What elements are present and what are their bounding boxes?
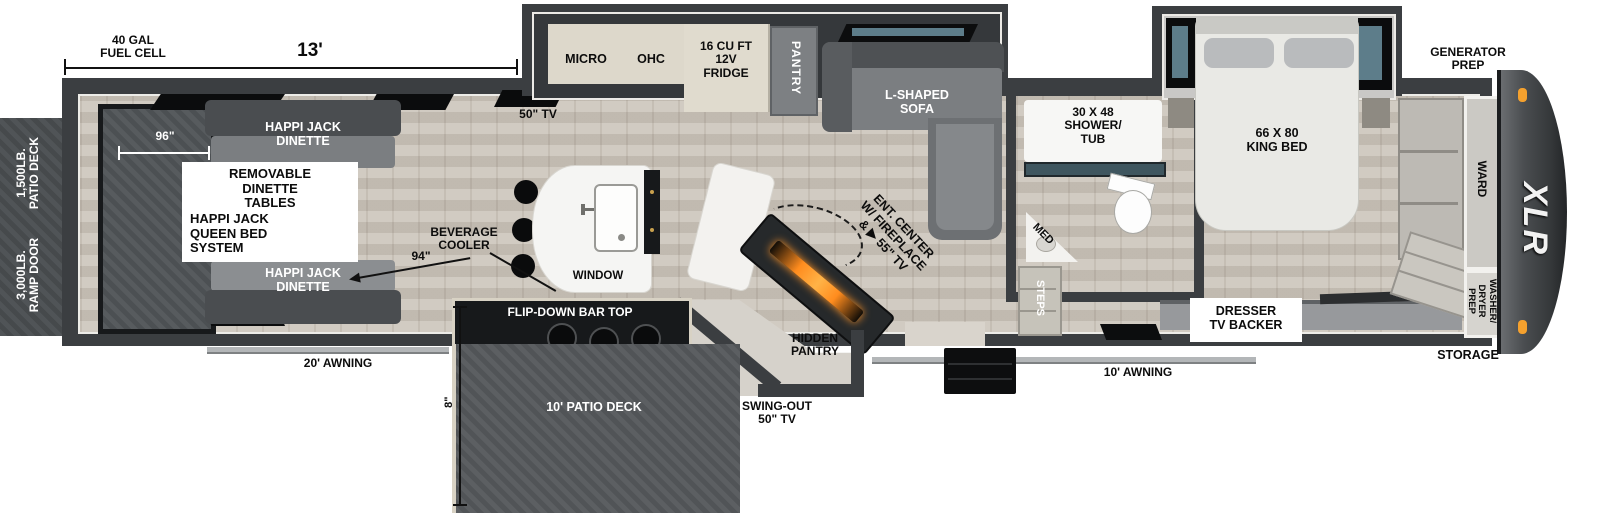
garage-width-label: 96" [130, 130, 200, 143]
generator-prep-label: GENERATOR PREP [1416, 46, 1520, 73]
patio-deck-label: 10' PATIO DECK [520, 400, 668, 414]
dim-tick [453, 306, 467, 308]
awning-left-bar [207, 347, 449, 354]
bed-pillow [1204, 38, 1274, 68]
step-line [948, 378, 1012, 380]
nightstand [1362, 98, 1390, 128]
swing-tv-label: SWING-OUT 50" TV [726, 400, 828, 427]
bar-stool [514, 180, 538, 204]
deck-height-dim-line [459, 306, 461, 506]
brand-logo: XLR [1512, 174, 1554, 264]
island-range [644, 170, 660, 254]
marker-light [1518, 320, 1527, 334]
step-line [948, 363, 1012, 365]
dim-tick [208, 146, 210, 160]
garage-span-label: 94" [396, 250, 446, 263]
dinette-bottom-label: HAPPI JACK DINETTE [215, 266, 391, 294]
steps-label: STEPS [1030, 256, 1046, 340]
toilet-bowl [1114, 190, 1152, 234]
window-glass-pane [1356, 26, 1382, 80]
ward-label: WARD [1472, 137, 1488, 221]
king-bed-label: 66 X 80 KING BED [1212, 126, 1342, 154]
awning-right-bar [872, 357, 1256, 364]
entry-steps [944, 348, 1016, 394]
deck-height-label: 8" [443, 389, 455, 415]
awning-left-label: 20' AWNING [286, 357, 390, 370]
hidden-pantry-wall [758, 384, 864, 397]
sofa-chaise-cushion [936, 124, 994, 230]
garage-tv-label: 50" TV [500, 108, 576, 121]
sink-faucet-base [581, 204, 585, 215]
shower-label: 30 X 48 SHOWER/ TUB [1024, 106, 1162, 146]
shelf-line [1400, 202, 1458, 205]
queen-bed-system-label: HAPPI JACK QUEEN BED SYSTEM [190, 212, 310, 256]
ohc-label: OHC [622, 52, 680, 66]
patio-deck [452, 344, 740, 513]
fuel-cell-label: 40 GAL FUEL CELL [78, 34, 188, 61]
floorplan-diagram: 40 GAL FUEL CELL 13' 1,500LB. PATIO DECK… [0, 0, 1600, 513]
beverage-cooler-label: BEVERAGE COOLER [424, 226, 504, 253]
storage-label: STORAGE [1416, 348, 1520, 362]
sofa-arm [822, 42, 852, 132]
arrowhead [348, 273, 361, 285]
sofa-label: L-SHAPED SOFA [862, 88, 972, 116]
awning-right-label: 10' AWNING [1086, 366, 1190, 379]
removable-tables-label: REMOVABLE DINETTE TABLES [182, 167, 358, 211]
dim-tick [453, 504, 467, 506]
hidden-pantry-label: HIDDEN PANTRY [774, 332, 856, 359]
dresser-label: DRESSER TV BACKER [1190, 304, 1302, 332]
window-glass-pane [852, 28, 964, 36]
window-glass [1100, 324, 1162, 340]
window-glass-pane [1172, 26, 1188, 78]
range-knob [650, 190, 654, 194]
fridge-label: 16 CU FT 12V FRIDGE [684, 40, 768, 80]
dinette-top-label: HAPPI JACK DINETTE [215, 120, 391, 148]
window-label: WINDOW [564, 270, 632, 283]
garage-width-dim-line [118, 152, 210, 154]
garage-length-label: 13' [270, 40, 350, 61]
dim-tick [118, 146, 120, 160]
shelf-line [1400, 150, 1458, 153]
dim-tick [64, 59, 66, 75]
shower-glass [1024, 162, 1166, 177]
washer-dryer-label: WASHER/ DRYER PREP [1463, 271, 1497, 331]
marker-light [1518, 88, 1527, 102]
bed-headboard [1196, 18, 1358, 34]
nightstand [1168, 98, 1194, 128]
pantry-label: PANTRY [786, 32, 802, 104]
dinette-sofa-bottom [205, 290, 401, 324]
dim-tick [516, 59, 518, 75]
ramp-door-rating-label: 3,000LB. RAMP DOOR [15, 215, 45, 335]
sink-drain [618, 234, 625, 241]
micro-label: MICRO [550, 52, 622, 66]
sink-faucet [584, 208, 594, 211]
flip-bar-label: FLIP-DOWN BAR TOP [468, 306, 672, 319]
range-knob [650, 228, 654, 232]
step-line [1399, 270, 1468, 294]
entry-opening [905, 322, 985, 346]
island-sink [594, 184, 638, 252]
bed-pillow [1284, 38, 1354, 68]
garage-length-dim-line [64, 67, 518, 69]
